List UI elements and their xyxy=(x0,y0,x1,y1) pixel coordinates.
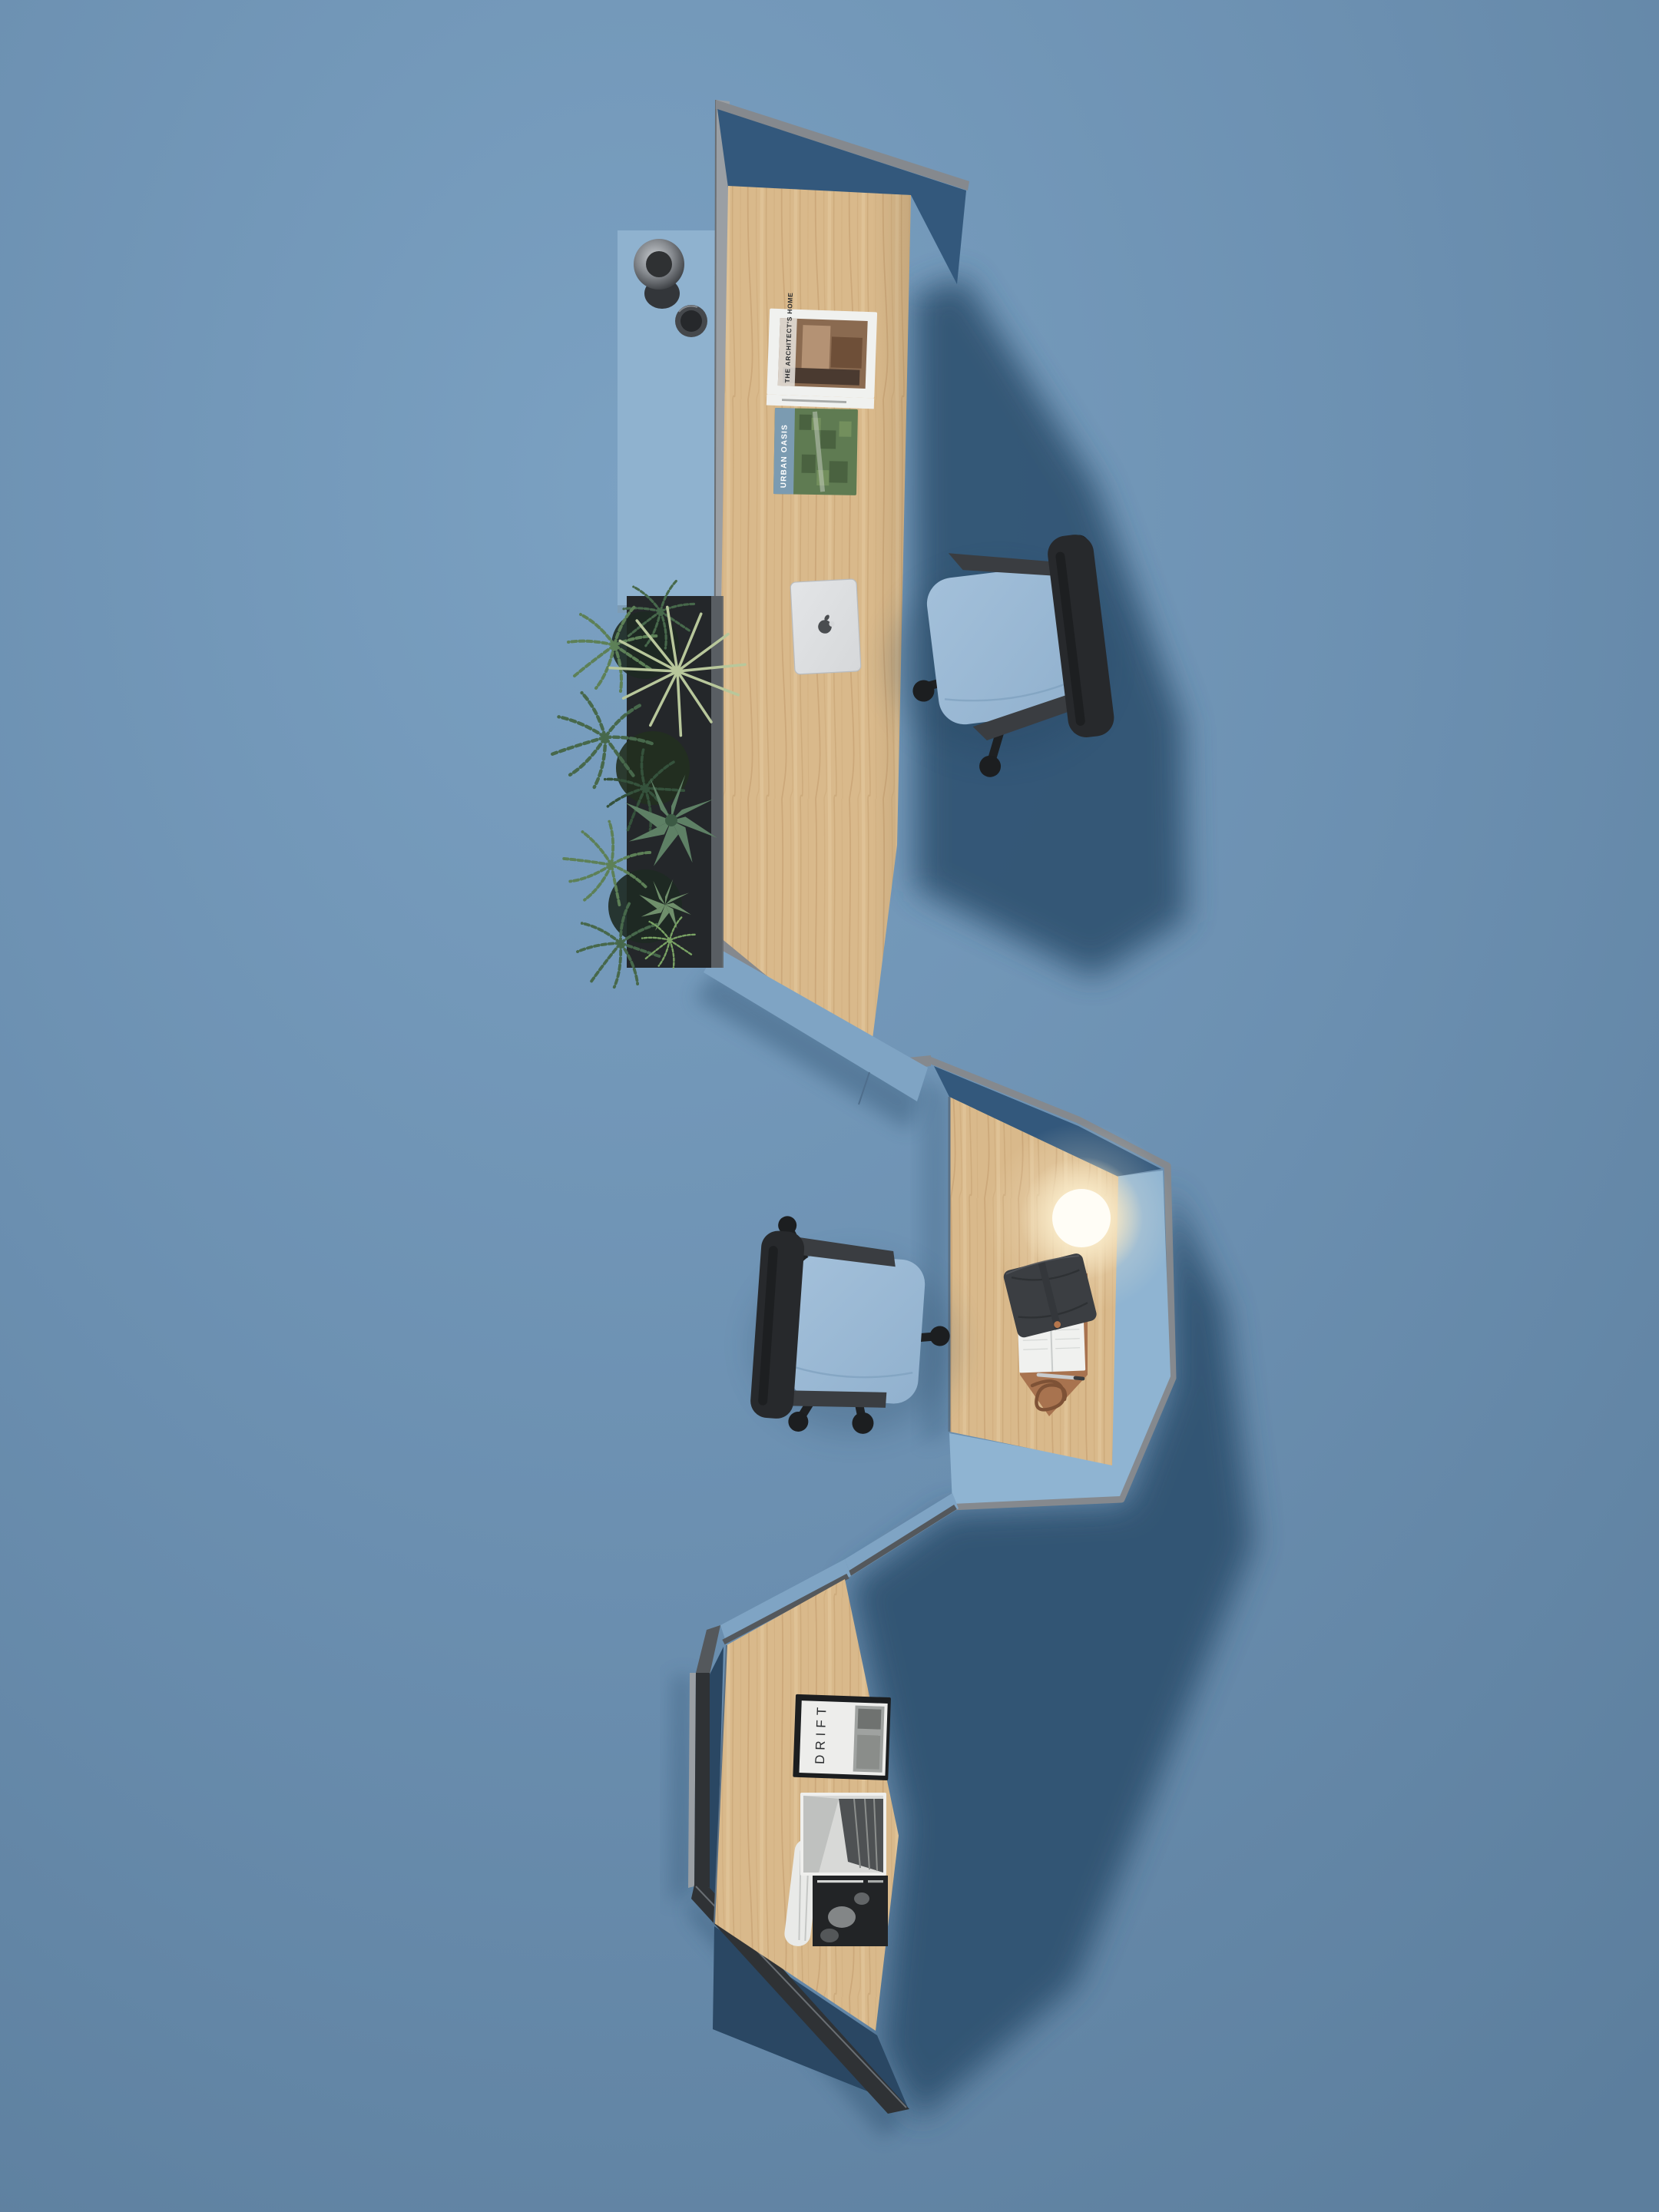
planter-box-edge xyxy=(711,596,724,968)
office-render-scene: THE ARCHITECT'S HOME URBAN OASIS xyxy=(0,0,1659,2212)
metal-bowl xyxy=(675,305,707,337)
chair-seat xyxy=(788,1252,927,1405)
magazine-title: DRIFT xyxy=(813,1703,829,1765)
urban-oasis-magazine: URBAN OASIS xyxy=(773,408,858,495)
scene-canvas: THE ARCHITECT'S HOME URBAN OASIS xyxy=(0,0,1659,2212)
left-wall-cap xyxy=(694,1673,710,1888)
apple-laptop xyxy=(790,579,861,674)
magazine-title: URBAN OASIS xyxy=(780,424,789,488)
drift-magazine: DRIFT xyxy=(793,1694,891,1780)
